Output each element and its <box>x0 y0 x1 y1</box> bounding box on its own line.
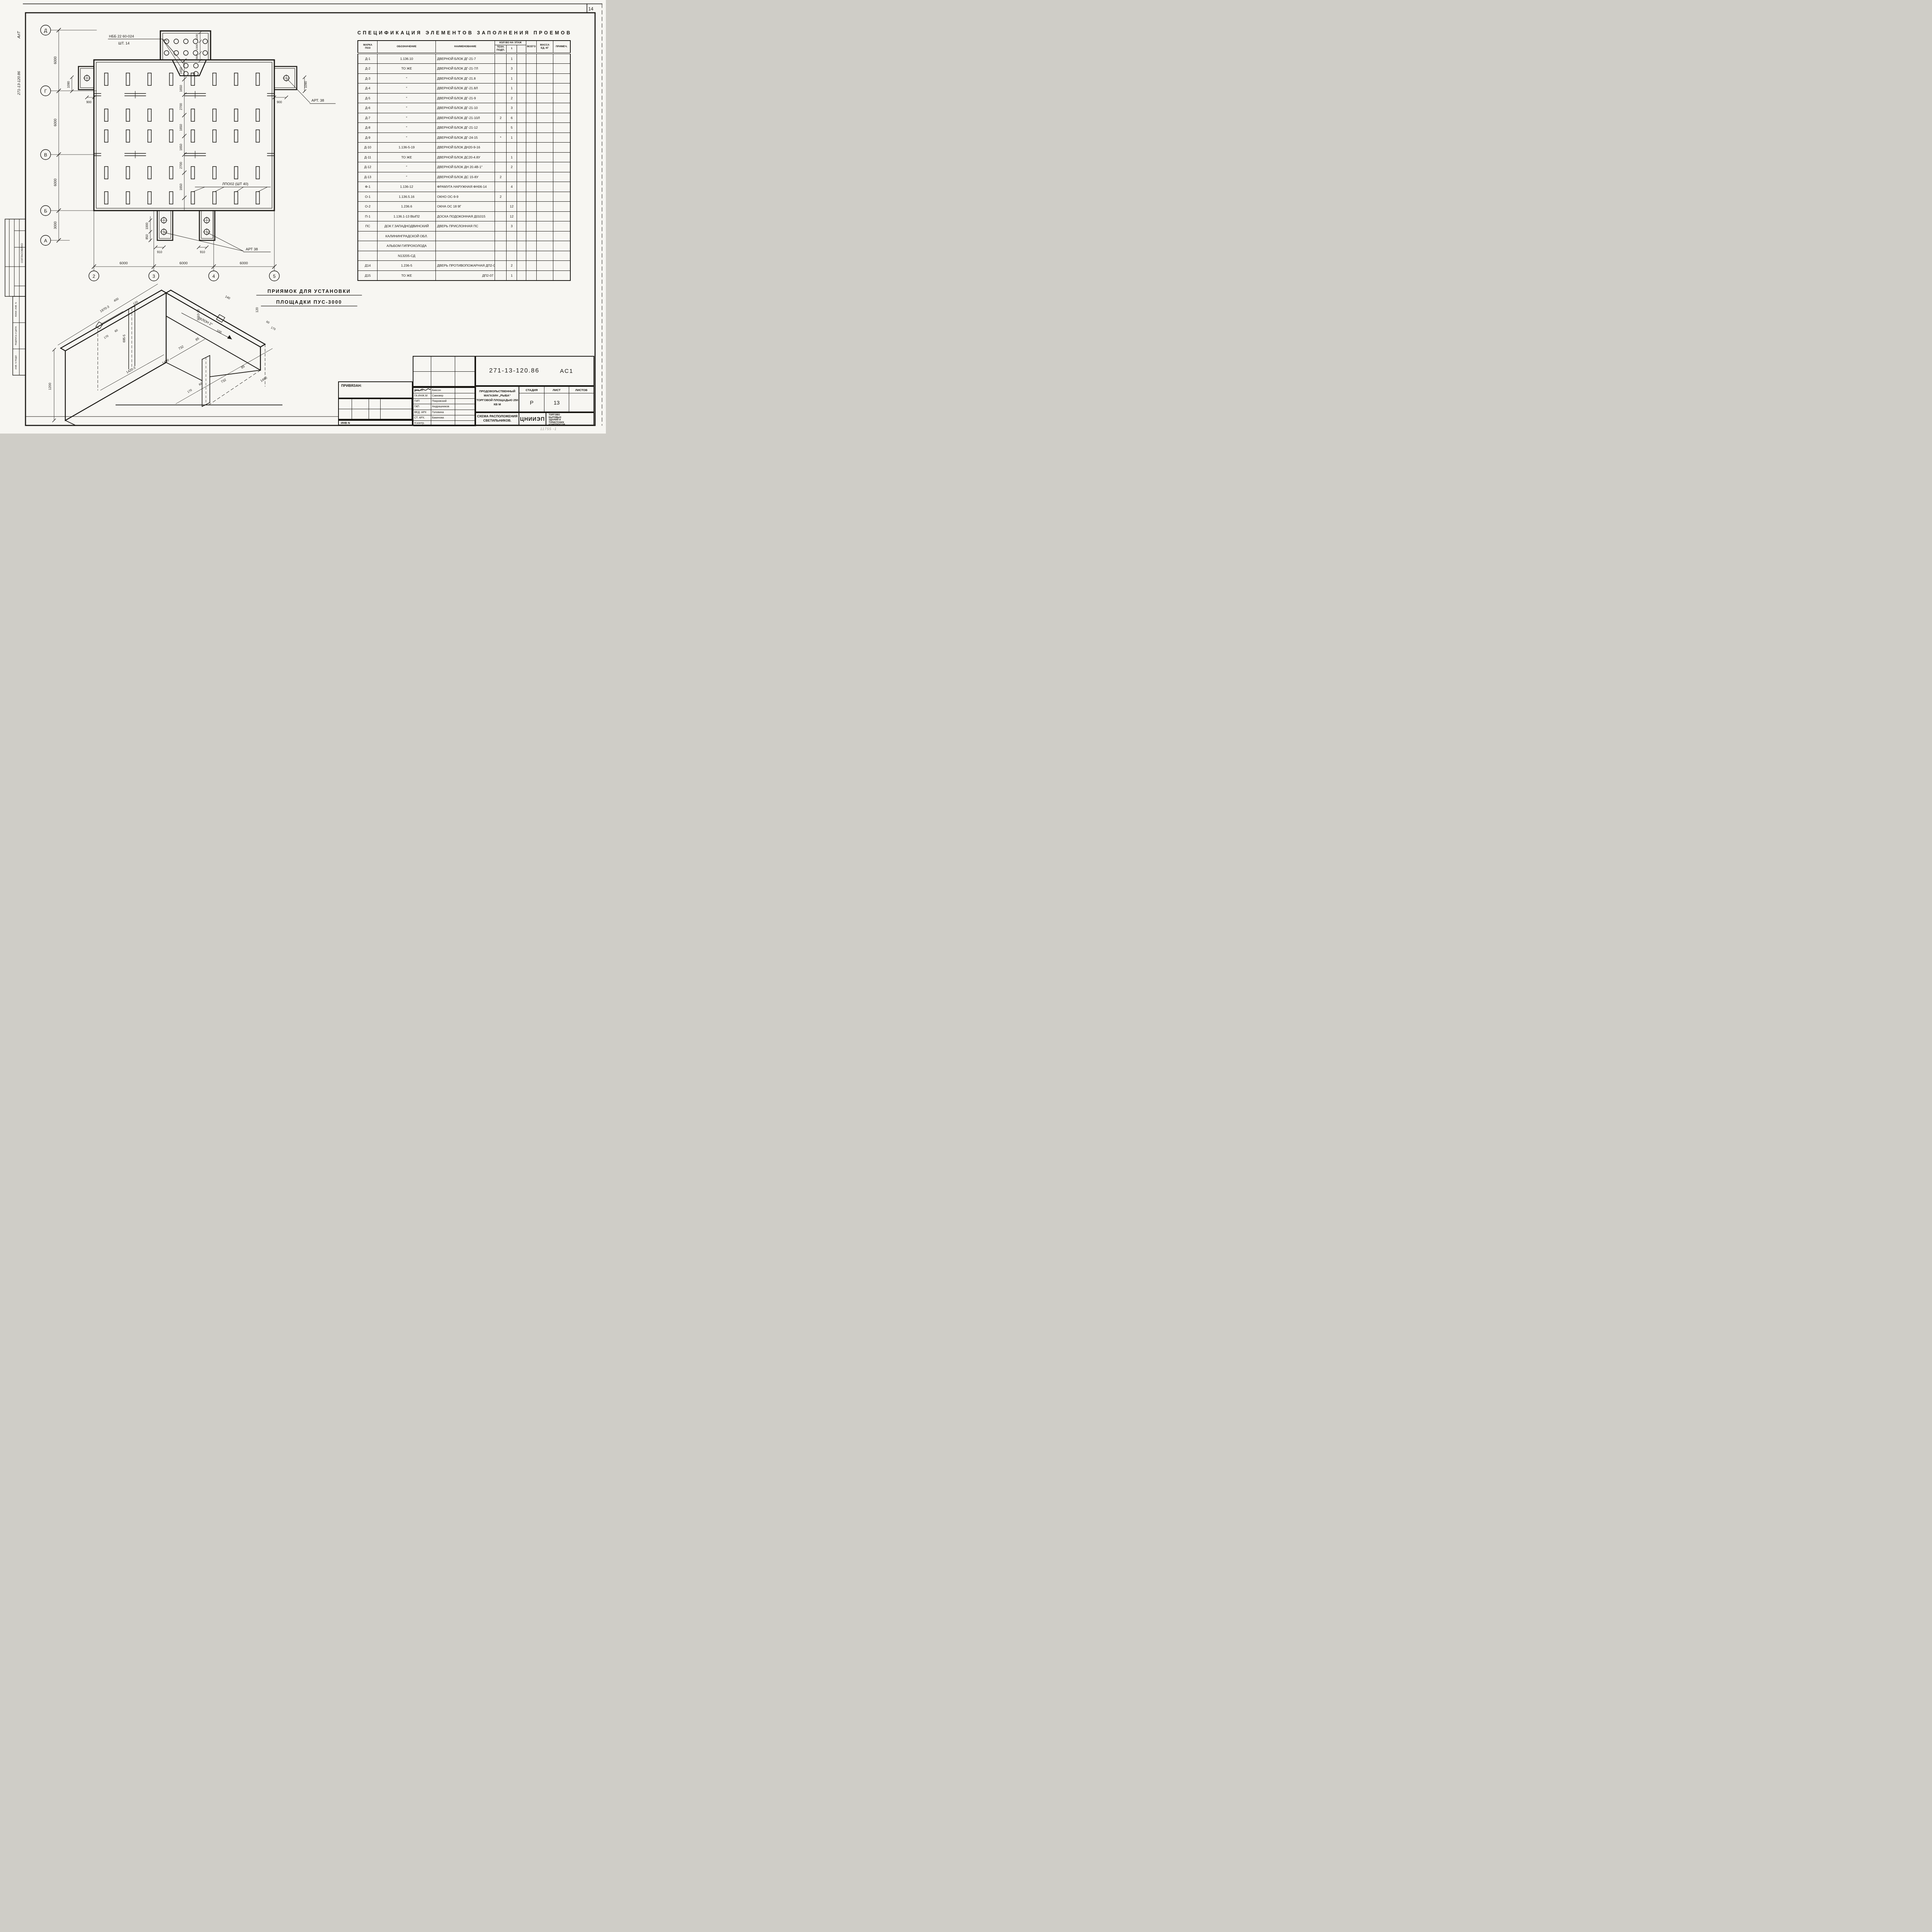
role-label: СТ. АРХ. <box>413 415 431 421</box>
axis-col-2: 2 <box>93 274 95 279</box>
spec-cell <box>536 83 553 94</box>
spec-cell <box>536 231 553 241</box>
table-row: Д-4″ДВЕРНОЙ БЛОК ДГ-21.8Л1 <box>358 83 570 94</box>
table-row: Д-9″ДВЕРНОЙ БЛОК ДГ-24-15*1 <box>358 133 570 143</box>
spec-cell <box>517 73 526 83</box>
lamp-symbol <box>191 192 195 204</box>
signature <box>455 415 476 421</box>
spec-cell <box>536 113 553 123</box>
dim-bporch-1000: 1000 <box>145 223 149 230</box>
lamp-symbol <box>213 73 216 85</box>
spec-cell <box>553 221 570 231</box>
spec-cell <box>436 241 495 251</box>
lamp-symbol <box>191 109 195 121</box>
signature <box>455 421 476 426</box>
dim-porch-right-h: 900 <box>277 100 282 104</box>
dim-100: 100 <box>216 329 222 334</box>
spec-cell: ДВЕРНОЙ БЛОК ДГ-21-7Л <box>436 64 495 74</box>
spec-cell <box>517 241 526 251</box>
dim-1010: 1010-20 <box>197 309 200 321</box>
spec-cell: ДВЕРНОЙ БЛОК ДС 15-8У <box>436 172 495 182</box>
dim-85-bot: 85 <box>240 364 245 370</box>
porch-bottom-1 <box>157 211 173 240</box>
spec-cell <box>517 133 526 143</box>
hall-inner-wall <box>96 62 272 208</box>
spec-cell: Д-10 <box>358 143 378 153</box>
spec-cell <box>517 123 526 133</box>
spec-cell <box>536 73 553 83</box>
spec-table: МАРКА ПОЗ ОБОЗНАЧЕНИЕ НАИМЕНОВАНИЕ КОЛ В… <box>357 40 571 281</box>
dim-170-right: 170 <box>270 326 276 331</box>
spec-cell: 1.236-5 <box>378 261 436 271</box>
lamp-symbol <box>235 109 238 121</box>
spec-cell: 1 <box>507 73 517 83</box>
spec-cell <box>507 172 517 182</box>
titleblock-bottom: СХЕМА РАСПОЛОЖЕНИЯ СВЕТИЛЬНИКОВ. ЦНИИЭП … <box>475 412 594 425</box>
lamp-symbol <box>105 109 108 121</box>
dim-center-3: 2700 <box>179 103 183 110</box>
dim-60-left: 60 <box>114 328 119 333</box>
lamp-symbol <box>256 109 260 121</box>
titleblock-left-grid <box>338 398 413 420</box>
spec-h-total: ВСЕГО <box>526 41 536 53</box>
spec-cell: ″ <box>378 83 436 94</box>
axis-row-a: А <box>44 238 47 243</box>
role-name: Бакинова <box>431 415 455 421</box>
spec-cell <box>553 231 570 241</box>
project-name: ПРОДОВОЛЬСТВЕННЫЙ МАГАЗИН „РЫБА“ ТОРГОВО… <box>476 387 519 412</box>
table-row: АЛЬБОМ ГИПРОХОЛОДА <box>358 241 570 251</box>
lpo-leaders <box>193 187 267 192</box>
spec-cell <box>553 251 570 261</box>
spec-cell: 1.136-5-19 <box>378 143 436 153</box>
dim-140: 140 <box>224 295 231 300</box>
spec-cell <box>507 231 517 241</box>
dim-vest-2: 1000 <box>195 44 199 51</box>
spec-cell: Д-5 <box>358 93 378 103</box>
spec-panel: СПЕЦИФИКАЦИЯ ЭЛЕМЕНТОВ ЗАПОЛНЕНИЯ ПРОЕМО… <box>357 30 571 281</box>
spec-cell <box>495 162 507 172</box>
lamp-symbol <box>170 167 173 179</box>
role-label: ГА ИНЖ.М <box>413 393 431 399</box>
spec-cell <box>526 103 536 113</box>
drawing-sheet: 14 АлТ 271-13-120.86 СОГЛАСОВАНО ВЗАМ. И… <box>0 0 606 434</box>
spec-cell <box>536 143 553 153</box>
lamp-symbol <box>105 192 108 204</box>
role-name: Андрашников <box>431 404 455 410</box>
spec-cell: Д14 <box>358 261 378 271</box>
spec-cell: 2 <box>507 261 517 271</box>
lamp-symbol <box>105 167 108 179</box>
privyazan-box: ПРИВЯЗАН: <box>338 381 413 398</box>
spec-cell <box>495 103 507 113</box>
spec-cell <box>553 162 570 172</box>
spec-h-qty-group: КОЛ ВО НА ЭТАЖ <box>495 41 526 45</box>
spec-cell: ФРАМУГА НАРУЖНАЯ ФН06-14 <box>436 182 495 192</box>
spec-cell <box>517 270 526 281</box>
lamp-symbol <box>170 130 173 142</box>
axis-row-d: Д <box>44 28 47 33</box>
spec-cell <box>553 133 570 143</box>
lamp-symbol <box>126 73 130 85</box>
spec-cell: ТО ЖЕ <box>378 152 436 162</box>
spec-cell <box>526 113 536 123</box>
signature <box>455 393 476 399</box>
spec-cell <box>495 221 507 231</box>
spec-h-floor2 <box>517 45 526 53</box>
detail-title-2: ПЛОЩАДКИ ПУС-3000 <box>276 299 342 305</box>
drawing-title-line-1: СХЕМА РАСПОЛОЖЕНИЯ <box>476 414 519 418</box>
spec-cell <box>526 261 536 271</box>
spec-cell <box>526 123 536 133</box>
spec-cell: 1.236.6 <box>378 202 436 212</box>
signature <box>455 410 476 415</box>
titleblock-doc-number: 271-13-120.86 <box>489 367 539 374</box>
spec-cell: ДОСКА ПОДОКОННАЯ Д01015 <box>436 211 495 221</box>
spec-h-designation: ОБОЗНАЧЕНИЕ <box>378 41 436 53</box>
dim-732-bot: 732 <box>220 378 227 384</box>
spec-cell: ″ <box>378 162 436 172</box>
dim-vest-3: 900 <box>195 54 199 60</box>
dim-bottom-2: 6000 <box>179 261 187 265</box>
spec-cell <box>536 251 553 261</box>
nbb-lamp-circles <box>164 39 207 76</box>
spec-cell <box>495 152 507 162</box>
spec-cell <box>536 172 553 182</box>
dim-center-7: 1650 <box>179 184 183 190</box>
spec-cell <box>517 231 526 241</box>
spec-cell <box>553 103 570 113</box>
axis-row-b: Б <box>44 208 47 214</box>
lamp-symbol <box>126 167 130 179</box>
spec-cell: 2 <box>507 93 517 103</box>
spec-cell <box>495 211 507 221</box>
spec-cell <box>536 64 553 74</box>
spec-cell: ОКНА ОС 18 9Г <box>436 202 495 212</box>
spec-cell <box>553 143 570 153</box>
spec-cell <box>526 93 536 103</box>
spec-cell <box>358 251 378 261</box>
faint-stamp-note: 11755 -1 <box>540 427 557 431</box>
art-bottom-leader-2 <box>207 233 243 251</box>
spec-cell <box>436 251 495 261</box>
lamp-symbol <box>148 109 151 121</box>
dim-120-top: 120 <box>133 300 139 306</box>
spec-h-note: ПРИМЕЧ. <box>553 41 570 53</box>
spec-cell: Д-7 <box>358 113 378 123</box>
role-name <box>431 421 455 426</box>
dim-170-left: 170 <box>103 334 109 340</box>
spec-cell <box>553 202 570 212</box>
spec-cell <box>517 143 526 153</box>
spec-cell <box>526 73 536 83</box>
spec-cell: Ф-1 <box>358 182 378 192</box>
table-row: Д-2ТО ЖЕДВЕРНОЙ БЛОК ДГ-21-7Л3 <box>358 64 570 74</box>
spec-cell <box>553 123 570 133</box>
hall-outer-wall <box>94 60 274 211</box>
spec-cell: ДВЕРЬ ПРИСЛОННАЯ ПС <box>436 221 495 231</box>
dim-porch-left-h: 900 <box>86 100 92 104</box>
lamp-symbol <box>256 73 260 85</box>
spec-cell <box>536 211 553 221</box>
spec-cell <box>495 261 507 271</box>
table-row: О-11.136.5.16ОКНО ОС-9-92 <box>358 192 570 202</box>
spec-cell <box>526 53 536 64</box>
lamp-symbol <box>213 130 216 142</box>
lamp-symbol <box>213 167 216 179</box>
axis-row-g: Г <box>44 88 47 94</box>
dim-60-right: 60 <box>265 320 270 325</box>
spec-cell <box>536 261 553 271</box>
margin-doc-number: 271-13-120.86 <box>17 71 21 95</box>
dim-center-5: 1650 <box>179 144 183 151</box>
dim-bporch-850: 850 <box>145 234 149 240</box>
spec-cell: КАЛИНИНГРАДСКОЙ ОБЛ. <box>378 231 436 241</box>
project-line-3: ТОРГОВОЙ ПЛОЩАДЬЮ 250 КВ М <box>476 398 519 407</box>
lamp-symbol <box>148 192 151 204</box>
role-name: Покровский <box>431 399 455 404</box>
inv-box: ИНВ N <box>338 420 413 425</box>
spec-cell <box>526 172 536 182</box>
spec-cell <box>526 211 536 221</box>
table-row: КАЛИНИНГРАДСКОЙ ОБЛ. <box>358 231 570 241</box>
spec-cell: ДВЕРНОЙ БЛОК ДГ-21-9 <box>436 93 495 103</box>
spec-cell: Д-4 <box>358 83 378 94</box>
col-axis-bubbles <box>89 271 279 281</box>
spec-cell <box>495 83 507 94</box>
art-right-label: АРТ. 38 <box>311 99 324 103</box>
role-label: ГИП <box>413 399 431 404</box>
spec-cell <box>526 241 536 251</box>
spec-cell <box>507 143 517 153</box>
spec-cell <box>553 182 570 192</box>
spec-cell: Д-2 <box>358 64 378 74</box>
signature <box>455 399 476 404</box>
dim-left-4: 3000 <box>53 221 57 229</box>
spec-cell: ДВЕРНОЙ БЛОК ДГ-21-10 <box>436 103 495 113</box>
spec-cell: 3 <box>507 221 517 231</box>
lamp-symbol <box>256 192 260 204</box>
spec-cell: 1 <box>507 133 517 143</box>
spec-cell: 1.136-12 <box>378 182 436 192</box>
sheets-value <box>569 393 594 412</box>
spec-cell <box>536 103 553 113</box>
spec-cell <box>526 182 536 192</box>
spec-cell <box>553 152 570 162</box>
table-row: Д-12″ДВЕРНОЙ БЛОК ДН 20.4В-1″2 <box>358 162 570 172</box>
spec-cell <box>536 123 553 133</box>
sheet-header: ЛИСТ <box>544 387 569 393</box>
spec-cell <box>507 251 517 261</box>
spec-cell: ДОК Г.ЗАПАДНОДВИНСКИЙ <box>378 221 436 231</box>
spec-cell: Д15 <box>358 270 378 281</box>
dim-center-1: 1650 <box>179 67 183 74</box>
vestibule-trapezoid <box>173 61 206 76</box>
spec-cell <box>517 83 526 94</box>
spec-cell <box>536 152 553 162</box>
spec-cell <box>553 83 570 94</box>
nbb-label: НББ 22 60-024 <box>109 34 134 39</box>
spec-cell: 2 <box>507 162 517 172</box>
spec-h-mark: МАРКА ПОЗ <box>358 41 378 53</box>
lamp-symbol <box>235 73 238 85</box>
table-row: Ф-11.136-12ФРАМУГА НАРУЖНАЯ ФН06-144 <box>358 182 570 192</box>
titleblock-upper-grid <box>413 356 475 387</box>
spec-cell: ДВЕРНОЙ БЛОК ДГ-21.8Л <box>436 83 495 94</box>
spec-cell: 2 <box>495 172 507 182</box>
spec-cell: 1.136.5.16 <box>378 192 436 202</box>
spec-cell: ДП2-07 <box>436 270 495 281</box>
spec-cell: 6 <box>507 113 517 123</box>
spec-cell: Д-8 <box>358 123 378 133</box>
table-row: Д-3″ДВЕРНОЙ БЛОК ДГ-21.81 <box>358 73 570 83</box>
spec-cell <box>517 64 526 74</box>
dim-porch-left-v: 1090 <box>67 81 70 88</box>
spec-cell: П-1 <box>358 211 378 221</box>
spec-cell <box>358 241 378 251</box>
margin-vzam: ВЗАМ. ИНВ. N <box>15 302 17 316</box>
art-bottom-leader-1 <box>165 233 243 251</box>
table-row: N13205-СД <box>358 251 570 261</box>
spec-cell: ДВЕРНОЙ БЛОК ДГ-21-12 <box>436 123 495 133</box>
spec-cell: 1.136.1-13 ВЫП2 <box>378 211 436 221</box>
stage-value: Р <box>519 393 544 412</box>
spec-cell <box>553 73 570 83</box>
spec-cell: ТО ЖЕ <box>378 64 436 74</box>
spec-cell <box>517 162 526 172</box>
spec-cell: Д-3 <box>358 73 378 83</box>
spec-cell: ОКНО ОС-9-9 <box>436 192 495 202</box>
dim-1970: 1970-3 <box>99 304 110 313</box>
spec-cell <box>495 53 507 64</box>
table-row: П-11.136.1-13 ВЫП2ДОСКА ПОДОКОННАЯ Д0101… <box>358 211 570 221</box>
spec-cell <box>553 93 570 103</box>
drawing-title-line-2: СВЕТИЛЬНИКОВ. <box>476 418 519 423</box>
spec-cell: Д-11 <box>358 152 378 162</box>
org-line: ТОРГОВО <box>549 414 594 417</box>
spec-cell <box>517 211 526 221</box>
dim-center-6: 2700 <box>179 162 183 169</box>
titleblock-middle: ПРОДОВОЛЬСТВЕННЫЙ МАГАЗИН „РЫБА“ ТОРГОВО… <box>475 386 594 412</box>
dim-bporch-910a: 910 <box>157 250 162 254</box>
spec-h-floor1: 1 <box>507 45 517 53</box>
spec-cell <box>517 261 526 271</box>
spec-cell <box>517 93 526 103</box>
dim-center-2: 1650 <box>179 85 183 92</box>
spec-cell: 4 <box>507 182 517 192</box>
dim-695: 695-5 <box>122 334 126 342</box>
lamp-symbol <box>105 73 108 85</box>
spec-cell <box>536 133 553 143</box>
dim-left-2: 6000 <box>53 119 57 126</box>
spec-cell <box>526 202 536 212</box>
spec-cell: ″ <box>378 113 436 123</box>
dim-left-3: 6000 <box>53 179 57 186</box>
axis-col-5: 5 <box>273 274 276 279</box>
spec-cell <box>517 152 526 162</box>
spec-cell <box>536 93 553 103</box>
spec-cell: ДВЕРНОЙ БЛОК ДС20-4.8У <box>436 152 495 162</box>
axis-col-4: 4 <box>213 274 215 279</box>
spec-cell <box>536 202 553 212</box>
dim-left-1: 6000 <box>53 56 57 64</box>
spec-cell: ДВЕРНОЙ БЛОК ДГ-21.8 <box>436 73 495 83</box>
signature <box>455 388 476 393</box>
axis-col-3: 3 <box>153 274 155 279</box>
spec-cell <box>553 53 570 64</box>
spec-cell <box>553 241 570 251</box>
role-name: Самовер <box>431 393 455 399</box>
spec-cell: АЛЬБОМ ГИПРОХОЛОДА <box>378 241 436 251</box>
lamp-symbol <box>105 130 108 142</box>
spec-cell: 1 <box>507 83 517 94</box>
pit-detail <box>53 284 362 425</box>
spec-cell: ТО ЖЕ <box>378 270 436 281</box>
spec-cell <box>495 143 507 153</box>
org-line: ТУРИСТСКИХ <box>549 422 594 424</box>
spec-cell: ″ <box>378 103 436 113</box>
spec-cell <box>553 211 570 221</box>
spec-cell <box>553 270 570 281</box>
lamp-symbol <box>213 192 216 204</box>
table-row: Д141.236-5ДВЕРЬ ПРОТИВОПОЖАРНАЯ ДП2-072 <box>358 261 570 271</box>
lamp-symbol <box>148 167 151 179</box>
spec-cell <box>526 83 536 94</box>
spec-cell <box>536 162 553 172</box>
lamp-symbol <box>148 130 151 142</box>
table-row: ПСДОК Г.ЗАПАДНОДВИНСКИЙДВЕРЬ ПРИСЛОННАЯ … <box>358 221 570 231</box>
spec-cell <box>536 192 553 202</box>
titleblock-doc-cell: 271-13-120.86 АС1 <box>475 356 594 386</box>
stage-header: СТАДИЯ <box>519 387 544 393</box>
spec-cell: Д-1 <box>358 53 378 64</box>
spec-cell: О-1 <box>358 192 378 202</box>
spec-cell <box>526 133 536 143</box>
lpo-label: ЛПО02 (ШТ 40) <box>222 182 248 186</box>
sheets-header: ЛИСТОВ <box>569 387 594 393</box>
spec-cell: ″ <box>378 93 436 103</box>
spec-cell <box>517 251 526 261</box>
spec-cell <box>526 152 536 162</box>
stage-grid: СТАДИЯ ЛИСТ ЛИСТОВ Р 13 <box>519 387 594 412</box>
role-label: ВЕД. АРХ <box>413 410 431 415</box>
spec-cell: 12 <box>507 211 517 221</box>
spec-h-mass: МАССА ЕД. КГ <box>536 41 553 53</box>
spec-cell: ДВЕРНОЙ БЛОК ДН 20.4В-1″ <box>436 162 495 172</box>
spec-cell <box>553 113 570 123</box>
dim-400: 400 <box>113 297 120 303</box>
sheet-number: 14 <box>588 6 594 12</box>
dim-732-mid: 732 <box>178 344 185 350</box>
spec-cell <box>526 270 536 281</box>
spec-cell <box>536 53 553 64</box>
spec-title: СПЕЦИФИКАЦИЯ ЭЛЕМЕНТОВ ЗАПОЛНЕНИЯ ПРОЕМО… <box>357 30 571 36</box>
spec-cell <box>553 261 570 271</box>
spec-cell <box>517 172 526 182</box>
spec-cell: ″ <box>378 133 436 143</box>
titleblock-roles: РУК. М.БиксонГА ИНЖ.МСамоверГИППокровски… <box>413 387 475 425</box>
lamp-symbol <box>148 73 151 85</box>
horizontal-fixtures <box>94 94 274 156</box>
dim-1420: 1420-3 <box>126 366 136 374</box>
spec-cell <box>517 221 526 231</box>
spec-cell <box>495 241 507 251</box>
margin-podpis: ПОДПИСЬ И ДАТА <box>15 326 17 345</box>
table-row: Д-11.136.10ДВЕРНОЙ БЛОК ДГ-21-71 <box>358 53 570 64</box>
dim-bottom-1: 6000 <box>119 261 128 265</box>
org-line: КОМПЛЕКСОВ <box>549 424 594 427</box>
role-name: Головина <box>431 410 455 415</box>
